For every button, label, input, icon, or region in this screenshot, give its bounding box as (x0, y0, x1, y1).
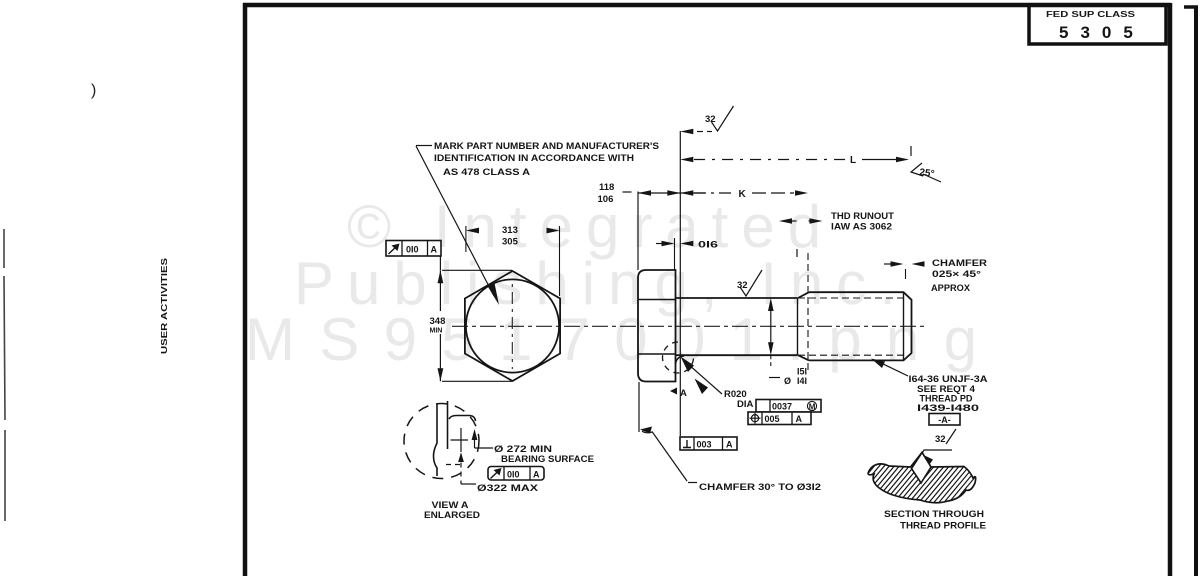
svg-text:AS 478 CLASS A: AS 478 CLASS A (443, 167, 530, 178)
svg-text:CHAMFER 30° TO Ø3I2: CHAMFER 30° TO Ø3I2 (699, 482, 821, 493)
svg-text:0I6: 0I6 (698, 240, 718, 251)
svg-text:): ) (91, 82, 96, 99)
svg-text:SECTION THROUGH: SECTION THROUGH (884, 509, 984, 520)
svg-text:118: 118 (599, 182, 614, 193)
svg-text:Ø: Ø (784, 376, 791, 386)
svg-text:FED SUP CLASS: FED SUP CLASS (1046, 10, 1136, 19)
svg-text:USER ACTIVITIES: USER ACTIVITIES (160, 257, 169, 354)
svg-text:IAW AS 3062: IAW AS 3062 (831, 222, 892, 232)
svg-text:K: K (739, 189, 747, 200)
svg-text:I439-I480: I439-I480 (917, 403, 979, 413)
svg-text:MS9517001.png: MS9517001.png (245, 306, 1001, 373)
svg-text:-A-: -A- (938, 415, 951, 425)
svg-text:106: 106 (598, 194, 614, 205)
svg-text:VIEW A: VIEW A (432, 500, 470, 510)
svg-text:I4I: I4I (797, 376, 807, 386)
svg-text:0037: 0037 (772, 402, 792, 412)
svg-text:A: A (726, 440, 733, 450)
svg-text:Ø322 MAX: Ø322 MAX (477, 483, 539, 494)
svg-text:32: 32 (737, 280, 748, 291)
svg-text:THREAD PD: THREAD PD (920, 394, 973, 404)
svg-text:A: A (680, 388, 687, 399)
svg-text:0I0: 0I0 (406, 245, 419, 255)
svg-text:MARK PART NUMBER AND MANUFACTU: MARK PART NUMBER AND MANUFACTURER'S (434, 141, 659, 152)
svg-text:ENLARGED: ENLARGED (424, 510, 481, 520)
svg-text:THD RUNOUT: THD RUNOUT (831, 211, 895, 221)
svg-text:A: A (796, 414, 803, 424)
svg-text:BEARING SURFACE: BEARING SURFACE (501, 454, 594, 465)
svg-text:005: 005 (765, 414, 780, 424)
svg-text:32: 32 (935, 434, 946, 445)
svg-text:25°: 25° (919, 167, 936, 180)
svg-text:A: A (533, 470, 540, 480)
svg-text:APPROX: APPROX (931, 283, 970, 293)
svg-text:M: M (809, 402, 816, 411)
svg-text:THREAD PROFILE: THREAD PROFILE (900, 521, 986, 532)
svg-text:I64-36 UNJF-3A: I64-36 UNJF-3A (909, 374, 989, 384)
svg-text:A: A (431, 245, 438, 255)
svg-text:I5I: I5I (797, 367, 807, 377)
svg-text:L: L (850, 155, 856, 166)
svg-text:32: 32 (705, 114, 716, 125)
svg-text:348: 348 (430, 316, 446, 327)
svg-text:0I0: 0I0 (507, 470, 520, 480)
svg-text:IDENTIFICATION IN ACCORDANCE W: IDENTIFICATION IN ACCORDANCE WITH (434, 153, 634, 164)
svg-text:313: 313 (502, 225, 518, 236)
svg-text:SEE REQT 4: SEE REQT 4 (917, 384, 975, 394)
svg-text:DIA: DIA (737, 399, 754, 410)
svg-text:305: 305 (502, 237, 519, 248)
svg-text:003: 003 (697, 440, 712, 450)
svg-text:5305: 5305 (1059, 23, 1145, 42)
svg-text:025× 45°: 025× 45° (932, 269, 982, 279)
svg-text:CHAMFER: CHAMFER (932, 258, 988, 268)
svg-text:MIN: MIN (430, 328, 443, 335)
